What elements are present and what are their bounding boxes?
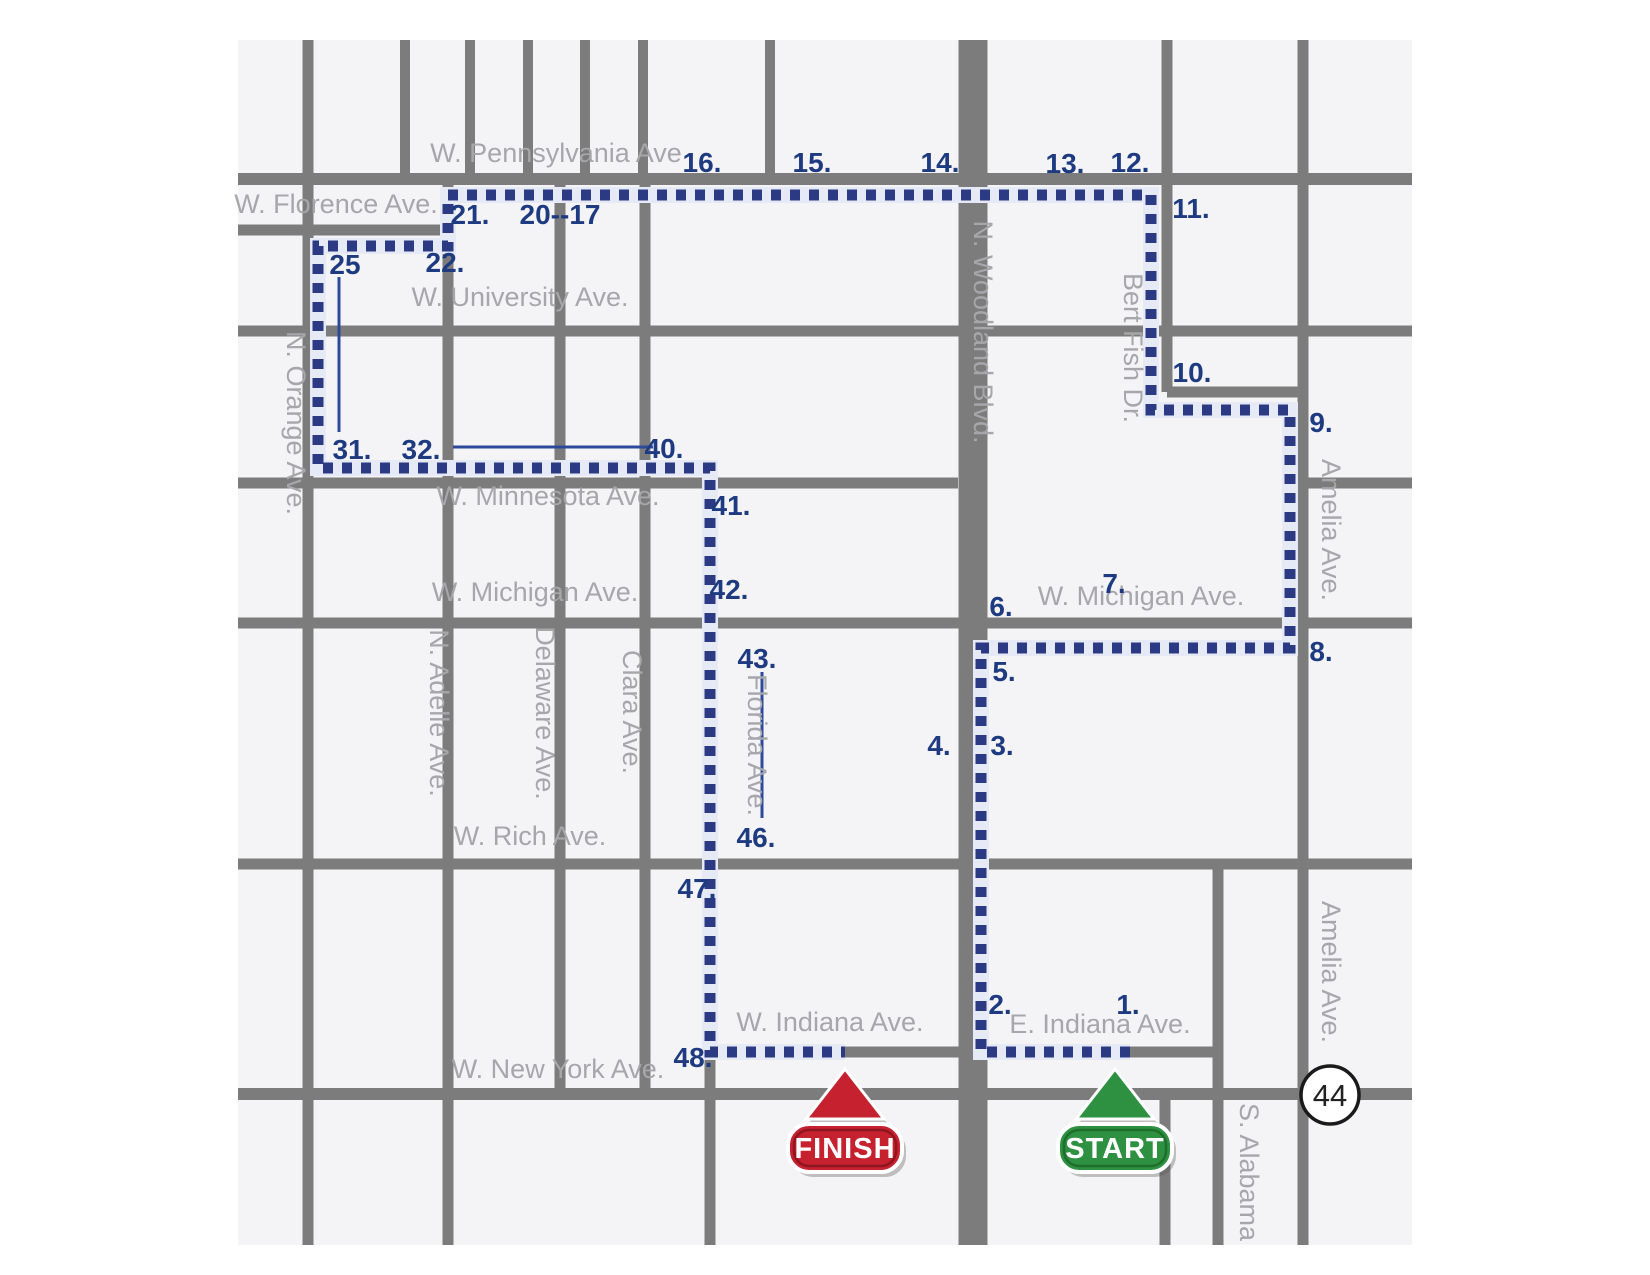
- stop-label-1: 1.: [1116, 989, 1139, 1020]
- street-label-11: N. Adelle Ave.: [424, 629, 454, 797]
- street-label-13: Clara Ave.: [617, 650, 647, 774]
- stop-label-11: 11.: [1172, 193, 1209, 224]
- street-vertical-12: [1162, 40, 1173, 392]
- stop-label-7: 7.: [1102, 568, 1125, 599]
- stop-label-15: 15.: [793, 147, 832, 178]
- stop-label-8: 8.: [1309, 636, 1332, 667]
- street-vertical-9: [640, 179, 651, 1094]
- finish-label: FINISH: [794, 1133, 895, 1165]
- stop-label-9: 9.: [1309, 407, 1332, 438]
- street-vertical-6: [765, 40, 775, 179]
- stop-label-12: 12.: [1111, 147, 1150, 178]
- map-page: W. Pennsylvania AveW. Florence Ave.W. Un…: [0, 0, 1650, 1275]
- stop-label-6: 6.: [989, 591, 1012, 622]
- stop-label-32: 32.: [402, 434, 441, 465]
- stop-label-3: 3.: [990, 730, 1013, 761]
- street-label-18: S. Alabama: [1234, 1103, 1264, 1242]
- stop-label-31: 31.: [333, 434, 372, 465]
- street-label-1: W. Florence Ave.: [234, 189, 438, 219]
- street-label-5: W. Michigan Ave.: [1038, 581, 1245, 611]
- stop-label-20--17: 20--17: [520, 199, 601, 230]
- stop-label-5: 5.: [992, 656, 1015, 687]
- stop-label-40: 40.: [645, 433, 684, 464]
- street-label-6: W. Rich Ave.: [454, 821, 607, 851]
- street-horizontal-6: [238, 618, 1412, 629]
- route-map: W. Pennsylvania AveW. Florence Ave.W. Un…: [0, 0, 1650, 1275]
- street-label-2: W. University Ave.: [411, 282, 628, 312]
- stop-label-25: 25: [329, 249, 360, 280]
- stop-label-41: 41.: [712, 490, 751, 521]
- street-vertical-1: [400, 40, 410, 179]
- route-44-badge-label: 44: [1313, 1078, 1347, 1113]
- street-vertical-0: [303, 40, 314, 1245]
- stop-label-2: 2.: [988, 989, 1011, 1020]
- stop-label-48: 48.: [674, 1042, 713, 1073]
- start-label: START: [1065, 1133, 1165, 1165]
- stop-label-21: 21.: [451, 199, 490, 230]
- street-horizontal-7: [238, 859, 1412, 870]
- street-label-19: N. Woodland Blvd.: [968, 220, 998, 443]
- street-label-16: Amelia Ave.: [1316, 459, 1346, 601]
- street-vertical-15: [1298, 40, 1309, 1245]
- stop-label-16: 16.: [683, 147, 722, 178]
- street-horizontal-2: [238, 326, 1412, 337]
- stop-label-4: 4.: [927, 730, 950, 761]
- street-label-9: W. New York Ave.: [452, 1054, 665, 1084]
- street-label-14: Florida Ave.: [742, 674, 772, 816]
- stop-label-22: 22.: [426, 247, 465, 278]
- stop-label-10: 10.: [1173, 357, 1212, 388]
- street-label-3: W. Minnesota Ave.: [436, 481, 659, 511]
- street-horizontal-1: [238, 225, 454, 236]
- stop-label-46: 46.: [737, 822, 776, 853]
- street-label-8: E. Indiana Ave.: [1009, 1009, 1190, 1039]
- stop-label-14: 14.: [921, 147, 960, 178]
- street-label-10: N. Orange Ave.: [281, 331, 311, 515]
- street-label-12: Delaware Ave.: [530, 626, 560, 800]
- stop-label-47: 47.: [678, 873, 717, 904]
- stop-label-13: 13.: [1046, 148, 1085, 179]
- stop-label-42: 42.: [710, 574, 749, 605]
- street-label-15: Bert Fish Dr.: [1118, 273, 1148, 423]
- street-label-0: W. Pennsylvania Ave: [430, 138, 682, 168]
- street-label-4: W. Michigan Ave.: [432, 577, 639, 607]
- street-horizontal-3: [1167, 387, 1303, 398]
- street-label-17: Amelia Ave.: [1316, 901, 1346, 1043]
- street-label-7: W. Indiana Ave.: [736, 1007, 923, 1037]
- stop-label-43: 43.: [738, 643, 777, 674]
